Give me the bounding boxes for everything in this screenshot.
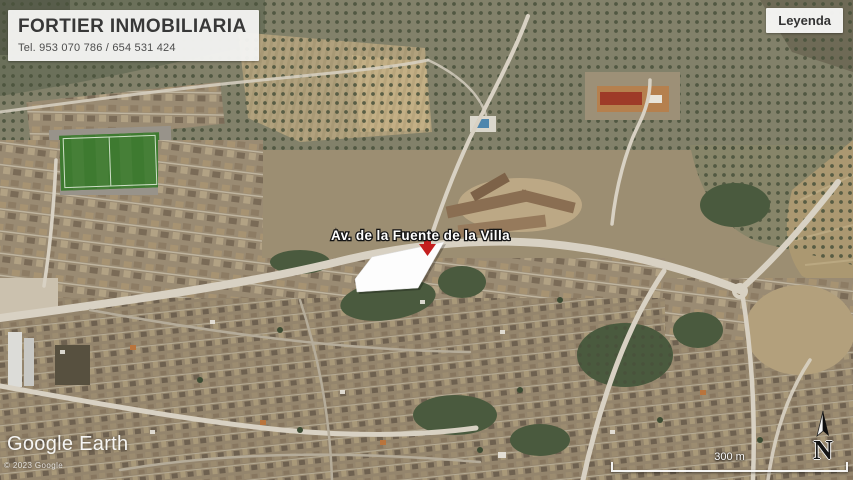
agency-title: FORTIER INMOBILIARIA [18, 16, 247, 38]
scale-bar-line [611, 462, 848, 472]
scale-bar: 300 m [611, 451, 848, 472]
agency-phone: Tel. 953 070 786 / 654 531 424 [18, 42, 247, 54]
north-arrow-icon [814, 410, 832, 438]
copyright-text: © 2023 Google [4, 461, 63, 470]
sports-field [49, 126, 173, 200]
legend-card: Leyenda [766, 8, 843, 33]
map-viewport[interactable]: Av. de la Fuente de la Villa FORTIER INM… [0, 0, 853, 480]
legend-label: Leyenda [778, 13, 831, 28]
agency-info-card: FORTIER INMOBILIARIA Tel. 953 070 786 / … [8, 10, 259, 61]
street-label: Av. de la Fuente de la Villa [331, 228, 510, 243]
satellite-map[interactable]: Av. de la Fuente de la Villa [0, 0, 853, 480]
google-earth-logo: Google Earth [7, 433, 128, 456]
